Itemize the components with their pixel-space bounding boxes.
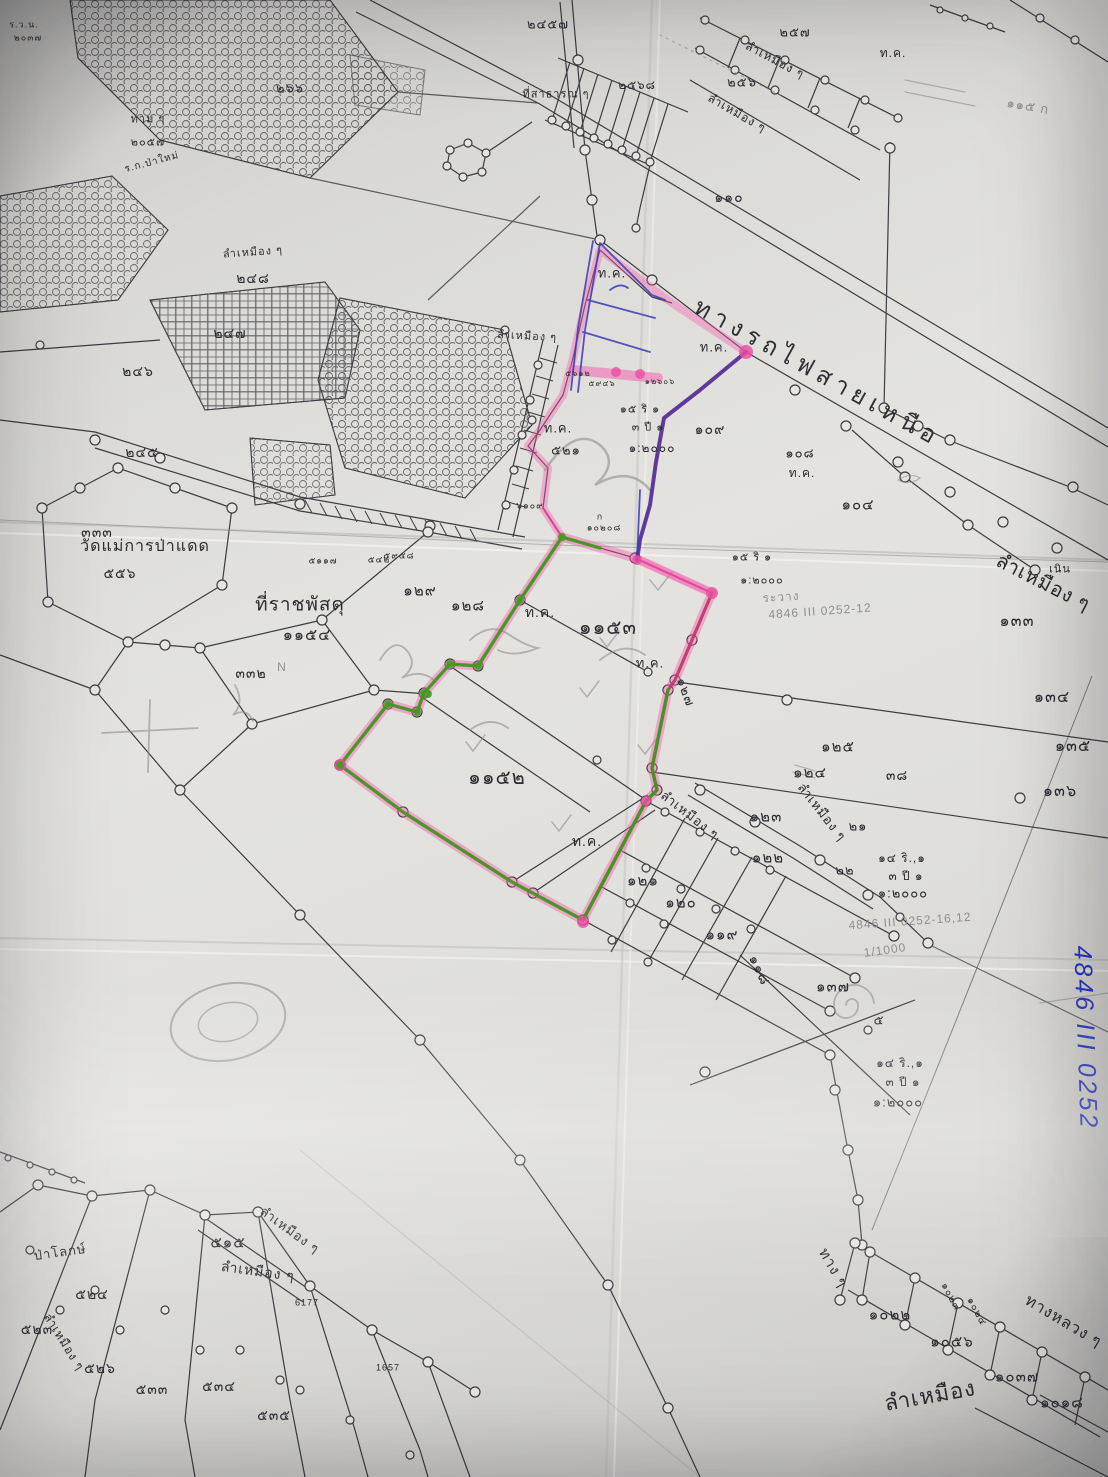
map-label: ลำเหมือง: [883, 1377, 978, 1415]
map-label: ท.ค.: [880, 47, 907, 59]
map-label: ลำเหมือง ๆ: [706, 92, 768, 135]
map-label: ลำเหมือง ๆ: [659, 788, 722, 841]
map-label: 4846 III 0252-12: [768, 601, 872, 620]
map-label: ระวาง: [762, 590, 800, 605]
map-label: ทางหลวง ๆ: [1022, 1293, 1104, 1351]
map-label: 6177: [295, 1299, 319, 1308]
map-label: ๒๕๖: [727, 76, 757, 89]
map-label: ๓๓๓: [81, 525, 113, 539]
map-label: ๒๔๖: [122, 364, 154, 378]
map-label: N: [277, 661, 287, 673]
map-label: ท.ค.: [544, 422, 573, 435]
map-label: ๕๓๕: [257, 1408, 291, 1422]
map-label: ๒๖๖: [276, 82, 304, 95]
map-label: ๑๐๘: [785, 447, 814, 460]
map-label: ๕๒๖: [84, 1361, 116, 1375]
map-label: ๕๖๑๒: [565, 370, 590, 378]
map-label: ๑:๒๐๐๐: [629, 442, 676, 454]
map-label: ๑๐๒๐๘: [587, 524, 622, 533]
map-label: ๑๒๙: [403, 584, 436, 599]
map-label: ๕๒๔: [75, 1287, 108, 1301]
map-label: ๒๕๗: [779, 26, 810, 39]
map-label: ๑๐๒๓: [939, 1281, 962, 1312]
labels-layer: ลำเหมือง ๆ๑๓๓๑๓๔๑๓๕๑๓๖๑๒๕๑๒๔๑๒๓๑๒๒๒๑๒๒๓๘…: [0, 0, 1108, 1477]
map-label: ๕๑๑๗: [308, 557, 337, 566]
map-label: ๑๓๗: [816, 980, 850, 995]
map-label: ๑๑๙: [705, 928, 738, 943]
map-label: ป่าโลกษ์: [33, 1242, 87, 1262]
map-label: ๒๔๕: [125, 445, 158, 459]
map-label: ๑๒๗: [675, 676, 697, 708]
map-label: ๕๒๑: [551, 444, 581, 457]
map-label: ๑๒๖๐๖: [645, 378, 675, 386]
map-label: ๕๙๔๘: [383, 552, 414, 561]
map-label: ๑๒๘: [451, 599, 485, 614]
map-label: ท.ค.: [636, 657, 665, 670]
map-label: ๑๐๒๒: [869, 1308, 911, 1323]
map-label: ๑๐๕๖: [930, 1335, 974, 1350]
map-label: ๓๓๒: [235, 666, 266, 680]
map-label: ๒๒: [835, 864, 854, 877]
map-label: ๑๑๘: [747, 953, 773, 988]
map-label: 1657: [376, 1364, 400, 1373]
map-label: ๑๑๕๒: [468, 768, 526, 788]
map-label: 4846 III 0252-16,12: [848, 911, 972, 932]
map-label: ที่ราชพัสดุ: [255, 596, 345, 615]
cadastral-map-photo: ลำเหมือง ๆ๑๓๓๑๓๔๑๓๕๑๓๖๑๒๕๑๒๔๑๒๓๑๒๒๒๑๒๒๓๘…: [0, 0, 1108, 1477]
map-label: ลำเหมือง ๆ: [993, 551, 1094, 615]
map-label: ๑๒๑: [627, 874, 659, 889]
map-label: ที่สาธารณ ๆ: [522, 90, 589, 101]
map-label: 1/1000: [863, 941, 907, 959]
map-label: ลำเหมือง ๆ: [223, 245, 284, 260]
map-label: ๖๑๐๙: [516, 502, 544, 511]
map-label: ๑๔ ริ.,๑: [878, 852, 926, 864]
map-label: ๕๙๔๖: [588, 380, 615, 388]
map-label: ท.ค.: [572, 834, 602, 848]
map-label: ๒๔๗: [213, 326, 246, 340]
map-label: ลำเหมือง ๆ: [497, 330, 558, 344]
map-label: ร.ก.ป่าใหม่: [124, 151, 181, 175]
map-label: ๑๓๔: [1034, 690, 1070, 706]
map-label: ๓๘: [886, 768, 908, 782]
map-label: ๓ ปี ๑: [632, 423, 665, 434]
map-label: ๑๒๒: [752, 851, 784, 866]
map-label: ลำเหมือง ๆ: [795, 781, 848, 844]
map-label: ลำเหมือง ๆ: [258, 1204, 322, 1255]
map-label: ๑๐๔: [841, 498, 874, 513]
map-label: ๑๐๓๗: [995, 1370, 1039, 1385]
map-label: ๑:๒๐๐๐: [740, 576, 783, 587]
map-label: ๑๒๔: [793, 766, 827, 781]
map-label: ๒๔๘: [236, 271, 270, 285]
map-label: ๕๓๔: [202, 1379, 236, 1393]
map-label: ทาม ๆ: [131, 115, 166, 126]
map-label: ๕๑๕: [210, 1236, 245, 1251]
map-label: ๑๐๒๔: [964, 1296, 987, 1328]
map-label: ๒๑: [849, 820, 868, 833]
map-label: ๑๒๐: [665, 896, 697, 911]
map-label: ร.ว.น.: [9, 21, 39, 30]
map-label: ๑๑๕๔: [283, 628, 332, 644]
map-label: วัดแม่การป่าแดด: [80, 539, 210, 555]
map-label: ๑๒๓: [750, 810, 783, 825]
map-label: ๒๐๓๗: [14, 34, 42, 43]
map-label: ๕๕๖: [103, 566, 136, 580]
map-label: ๒๔๕๗: [527, 18, 569, 31]
map-label: ๑๑๐: [714, 190, 743, 204]
map-label: ๑๒๕: [821, 740, 855, 755]
map-label: ๑๐๑๘: [1040, 1396, 1084, 1411]
map-label: ลำเหมือง ๆ: [42, 1311, 87, 1372]
map-label: ๒๐๕๗: [131, 138, 166, 149]
map-label: ลำเหมือง ๆ: [220, 1259, 296, 1283]
map-label: ก: [597, 513, 603, 522]
map-label: ๑๓๖: [1043, 784, 1077, 800]
map-label: ๑๑๕ ก: [1006, 96, 1050, 116]
map-label: ๓ ปี ๑: [888, 870, 923, 882]
map-label: ๑๓๕: [1055, 739, 1091, 755]
map-label: ๕: [874, 1014, 885, 1027]
map-label: ๑๑๕๓: [579, 618, 637, 638]
map-label: ๑๔ ริ.,๑: [876, 1057, 924, 1069]
map-label: ๓ ปี ๑: [885, 1076, 920, 1088]
map-label: ๒๕๖๘: [618, 79, 656, 91]
map-label: ๕๓๓: [136, 1382, 169, 1396]
map-label: ๑:๒๐๐๐: [878, 887, 928, 900]
map-label: ท.ค.: [598, 267, 627, 280]
map-label: ท.ค.: [789, 467, 816, 479]
map-label: ๑๕ ริ ๑: [732, 553, 772, 564]
map-label: ๑๓๓: [999, 614, 1034, 630]
map-label: ๑๕ ริ ๑: [620, 405, 660, 416]
map-label: เนิน: [1049, 565, 1071, 576]
map-label: ๑๐๙: [695, 422, 726, 436]
map-label: ทาง ๆ: [816, 1246, 850, 1291]
map-label: ท.ค.: [525, 605, 555, 619]
map-label: ๑:๒๐๐๐: [873, 1096, 923, 1109]
